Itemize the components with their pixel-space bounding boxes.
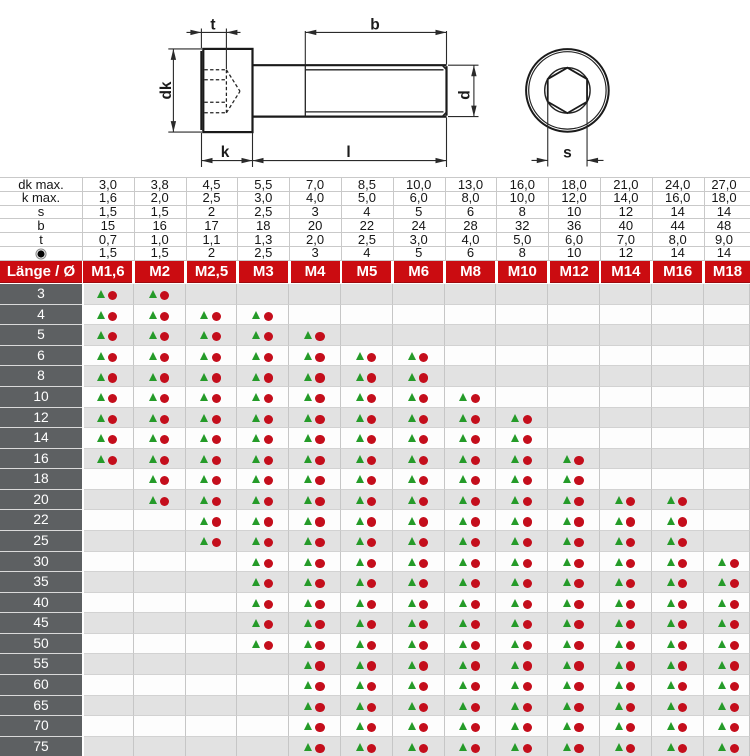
svg-text:dk: dk <box>158 81 175 99</box>
svg-text:d: d <box>456 90 473 99</box>
svg-text:s: s <box>563 145 572 162</box>
svg-text:t: t <box>210 17 215 34</box>
svg-text:k: k <box>221 144 230 161</box>
svg-text:b: b <box>370 17 379 34</box>
svg-text:l: l <box>346 144 350 161</box>
